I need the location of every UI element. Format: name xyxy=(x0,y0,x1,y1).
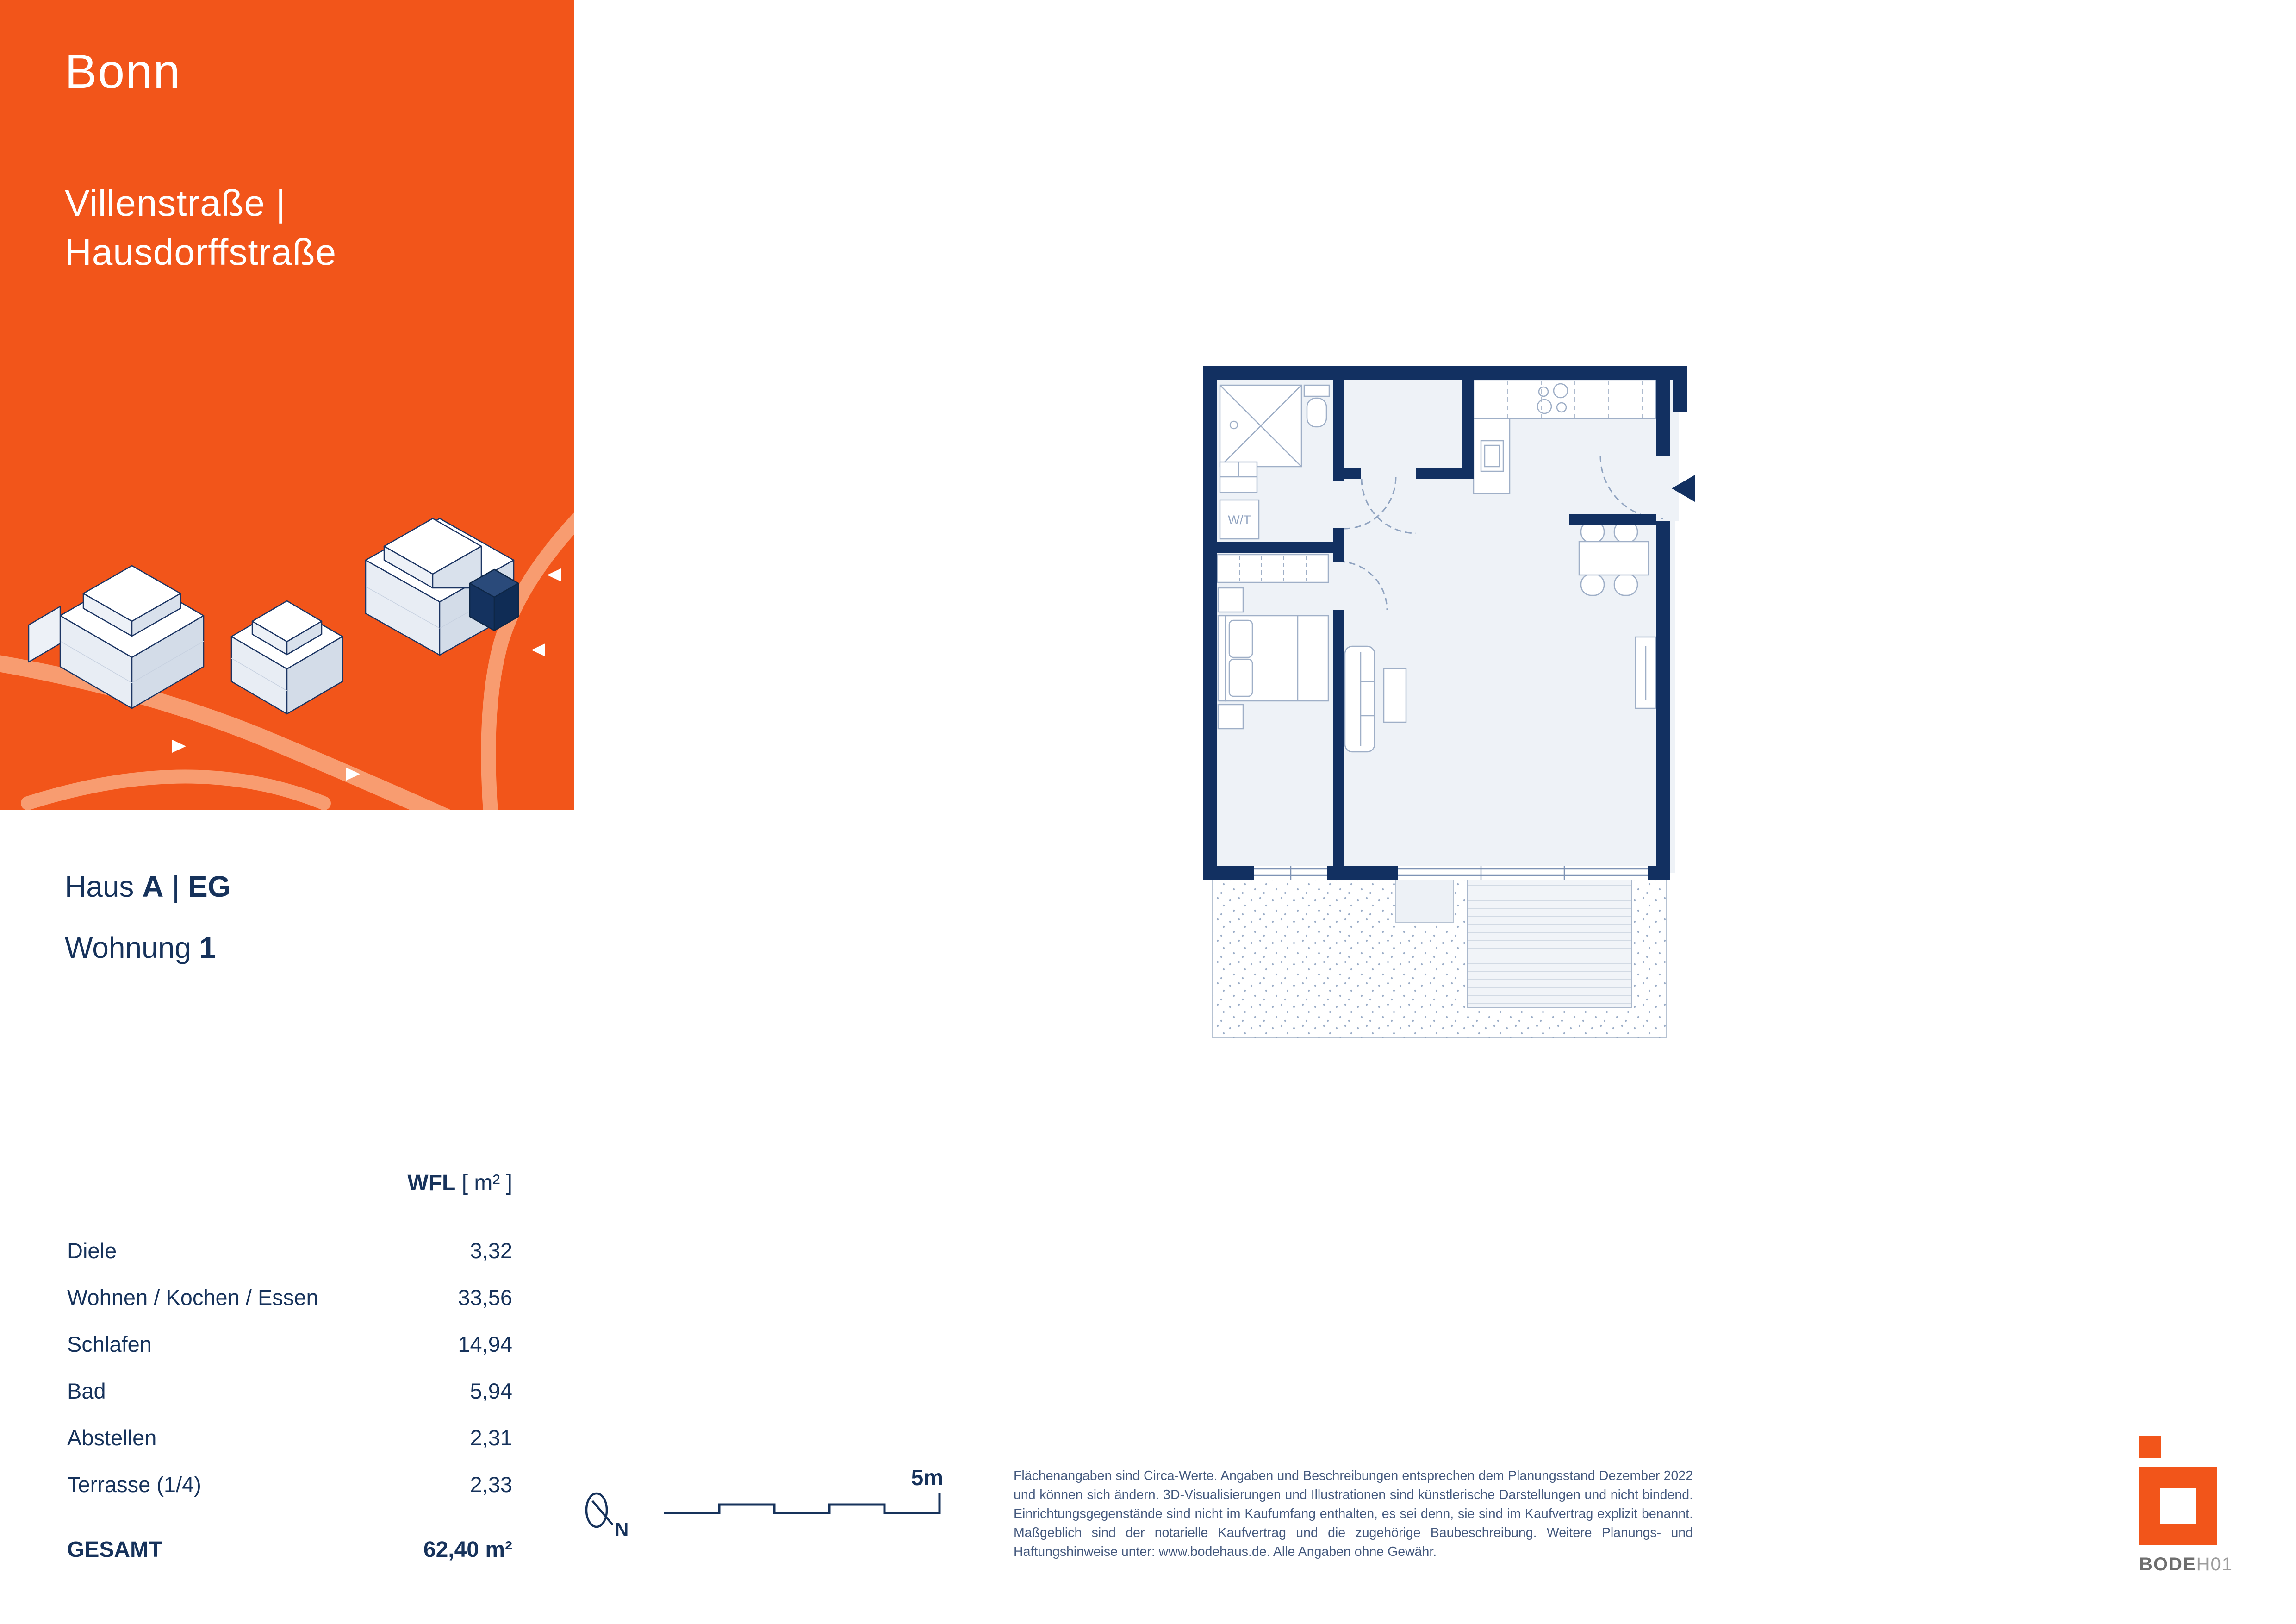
row-label: Diele xyxy=(67,1240,117,1262)
row-label: Wohnen / Kochen / Essen xyxy=(67,1287,318,1309)
unit-wohnung-line: Wohnung 1 xyxy=(65,931,216,965)
north-label: N xyxy=(615,1518,628,1540)
table-row: Diele 3,32 xyxy=(67,1240,512,1262)
row-label: Abstellen xyxy=(67,1427,156,1449)
street-line1: Villenstraße | xyxy=(65,179,336,228)
windows xyxy=(1254,866,1648,880)
row-value: 3,32 xyxy=(470,1240,512,1262)
logo-big-square-icon xyxy=(2139,1467,2217,1545)
wohnung-label: Wohnung xyxy=(65,931,191,964)
kitchen-counter xyxy=(1474,380,1656,418)
brochure-page: Bonn Villenstraße | Hausdorffstraße xyxy=(0,0,2296,1624)
building-middle xyxy=(231,601,342,714)
table-row: Wohnen / Kochen / Essen 33,56 xyxy=(67,1287,512,1309)
area-table-header: WFL [ m² ] xyxy=(67,1170,512,1196)
site-illustration xyxy=(0,384,574,810)
table-row: Bad 5,94 xyxy=(67,1380,512,1402)
logo-brand-light: H01 xyxy=(2196,1554,2233,1574)
terrace-step xyxy=(1395,880,1453,923)
street-subtitle: Villenstraße | Hausdorffstraße xyxy=(65,179,336,277)
haus-label: Haus xyxy=(65,870,134,903)
scale-label: 5m xyxy=(911,1466,943,1490)
row-value: 14,94 xyxy=(458,1333,512,1355)
row-label: Terrasse (1/4) xyxy=(67,1474,201,1496)
row-label: Bad xyxy=(67,1380,106,1402)
page-title: Bonn xyxy=(65,44,181,100)
street-line2: Hausdorffstraße xyxy=(65,228,336,277)
area-header-unit: [ m² ] xyxy=(462,1171,512,1195)
disclaimer-text: Flächenangaben sind Circa-Werte. Angaben… xyxy=(1014,1467,1693,1562)
haus-value: A xyxy=(142,870,163,903)
nightstand xyxy=(1218,705,1243,729)
shower xyxy=(1220,385,1301,467)
wohnung-value: 1 xyxy=(199,931,216,964)
unit-haus-line: Haus A|EG xyxy=(65,869,231,904)
area-table-total: GESAMT 62,40 m² xyxy=(67,1537,512,1562)
row-value: 2,33 xyxy=(470,1474,512,1496)
hero-panel: Bonn Villenstraße | Hausdorffstraße xyxy=(0,0,574,810)
area-header-wfl: WFL xyxy=(407,1171,455,1195)
north-compass: N xyxy=(574,1481,653,1555)
haus-separator: | xyxy=(172,870,180,903)
washbasin xyxy=(1220,462,1257,493)
kitchen-return-sink xyxy=(1474,418,1510,493)
highlighted-unit xyxy=(470,569,518,631)
total-value: 62,40 m² xyxy=(423,1537,512,1562)
logo-square-hole xyxy=(2160,1488,2196,1524)
table-row: Terrasse (1/4) 2,33 xyxy=(67,1474,512,1496)
toilet xyxy=(1304,385,1329,427)
terrace-decking xyxy=(1467,880,1631,1008)
sideboard xyxy=(1636,637,1656,708)
dining-table xyxy=(1579,542,1649,575)
company-logo: BODEH01 xyxy=(2129,1433,2231,1576)
building-right xyxy=(366,518,518,655)
bed xyxy=(1218,616,1328,701)
nightstand xyxy=(1218,588,1243,612)
table-row: Schlafen 14,94 xyxy=(67,1333,512,1355)
total-label: GESAMT xyxy=(67,1537,162,1562)
row-label: Schlafen xyxy=(67,1333,152,1355)
table-row: Abstellen 2,31 xyxy=(67,1427,512,1449)
floor-value: EG xyxy=(188,870,230,903)
terrace-garden xyxy=(1213,880,1666,1038)
wardrobe xyxy=(1217,555,1328,582)
coffee-table xyxy=(1384,668,1406,722)
sofa xyxy=(1345,646,1375,752)
logo-small-square-icon xyxy=(2139,1436,2161,1458)
building-left xyxy=(29,566,204,708)
bedroom-window xyxy=(1254,866,1327,880)
logo-brand-bold: BODE xyxy=(2139,1554,2196,1574)
row-value: 33,56 xyxy=(458,1287,512,1309)
logo-brand-text: BODEH01 xyxy=(2139,1554,2233,1575)
area-table: Diele 3,32 Wohnen / Kochen / Essen 33,56… xyxy=(67,1240,512,1520)
washer-dryer: W/T xyxy=(1220,500,1259,539)
washer-dryer-label: W/T xyxy=(1228,513,1251,527)
floor-plan: W/T xyxy=(1185,343,1722,1074)
scale-bar: 5m xyxy=(657,1463,972,1528)
row-value: 2,31 xyxy=(470,1427,512,1449)
living-window xyxy=(1398,866,1648,880)
row-value: 5,94 xyxy=(470,1380,512,1402)
